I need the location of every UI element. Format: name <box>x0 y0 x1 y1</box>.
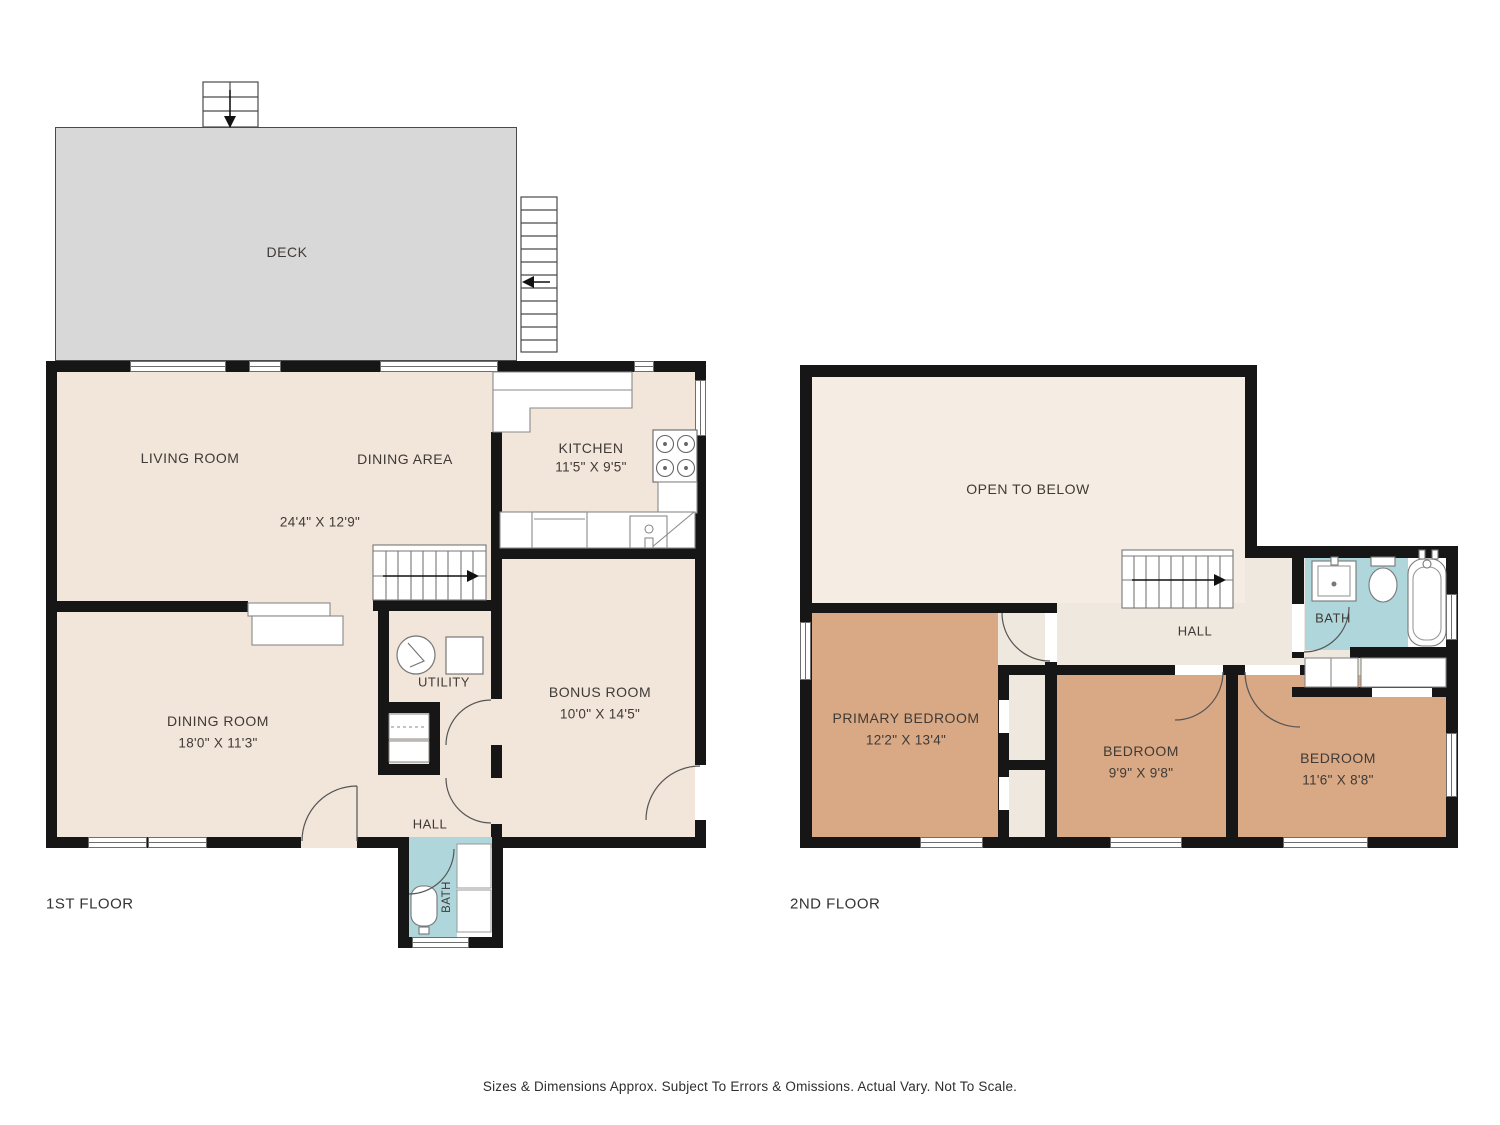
living-dining-dims: 24'4" X 12'9" <box>280 515 360 530</box>
window <box>1446 594 1457 640</box>
living-room-label: LIVING ROOM <box>141 450 240 466</box>
door-opening <box>1245 665 1300 675</box>
bedroom-right-label: BEDROOM <box>1300 750 1376 766</box>
floor-plan: DECK LIVING ROOM DINING AREA 24'4" X 12'… <box>0 0 1500 1125</box>
window <box>380 361 498 372</box>
wall <box>373 600 502 611</box>
closet-door-opening <box>999 700 1009 733</box>
door-opening <box>409 837 492 848</box>
floor2-title: 2ND FLOOR <box>790 896 880 913</box>
wall <box>998 760 1057 770</box>
window <box>88 837 147 848</box>
wall <box>492 848 503 948</box>
wall <box>1350 647 1458 658</box>
window <box>800 622 811 680</box>
deck-label: DECK <box>267 244 308 260</box>
deck-stair-arrow-icon <box>224 90 236 128</box>
window <box>1446 733 1457 797</box>
bath2-tub-zone <box>1408 558 1446 648</box>
closet-door-opening <box>1372 688 1432 697</box>
wall <box>46 601 248 612</box>
bath2-floor <box>1305 558 1408 650</box>
window <box>130 361 226 372</box>
disclaimer-text: Sizes & Dimensions Approx. Subject To Er… <box>0 1079 1500 1094</box>
wall <box>491 548 706 559</box>
open-to-below-label: OPEN TO BELOW <box>966 481 1089 497</box>
deck-entry-arrow-icon <box>522 276 550 288</box>
dining-room-dims: 18'0" X 11'3" <box>178 736 257 751</box>
wall <box>1226 665 1238 848</box>
bath1-fixture-zone <box>457 843 492 937</box>
bedroom-mid-label: BEDROOM <box>1103 743 1179 759</box>
door-opening <box>301 837 357 848</box>
door-opening <box>1292 604 1304 652</box>
hall2-label: HALL <box>1178 624 1213 639</box>
door-opening <box>1175 665 1223 675</box>
dining-area-label: DINING AREA <box>357 451 453 467</box>
window <box>634 361 654 372</box>
door-opening <box>491 699 502 745</box>
floor1-title: 1ST FLOOR <box>46 896 134 913</box>
bedroom-right-dims: 11'6" X 8'8" <box>1302 773 1373 788</box>
window <box>412 937 469 948</box>
door-opening <box>695 765 706 820</box>
window <box>920 837 983 848</box>
bonus-room-dims: 10'0" X 14'5" <box>560 707 640 722</box>
window <box>1283 837 1368 848</box>
door-opening <box>1045 613 1057 662</box>
bath2-label: BATH <box>1315 611 1351 626</box>
wall <box>998 665 1009 848</box>
dining-room-label: DINING ROOM <box>167 713 269 729</box>
primary-bedroom-label: PRIMARY BEDROOM <box>832 710 979 726</box>
wall <box>378 600 389 775</box>
bedroom-mid-dims: 9'9" X 9'8" <box>1109 766 1174 781</box>
utility-label: UTILITY <box>418 675 470 690</box>
deck-side-stairs-icon <box>521 197 557 352</box>
kitchen-dims: 11'5" X 9'5" <box>555 460 626 475</box>
wall <box>378 764 440 775</box>
hall1-label: HALL <box>413 817 448 832</box>
bonus-room-label: BONUS ROOM <box>549 684 651 700</box>
wall <box>398 848 409 948</box>
bath1-label: BATH <box>441 881 453 913</box>
window <box>1110 837 1182 848</box>
door-opening <box>491 778 502 824</box>
window <box>695 380 706 436</box>
wall <box>1245 365 1257 552</box>
wall <box>800 365 1257 377</box>
wall <box>1446 546 1458 848</box>
window <box>249 361 281 372</box>
window <box>148 837 207 848</box>
wall <box>1245 546 1458 558</box>
closet-door-opening <box>999 777 1009 810</box>
wall <box>800 603 1057 613</box>
deck-stairs-icon <box>203 82 258 127</box>
primary-bedroom-dims: 12'2" X 13'4" <box>866 733 946 748</box>
kitchen-label: KITCHEN <box>559 440 624 456</box>
